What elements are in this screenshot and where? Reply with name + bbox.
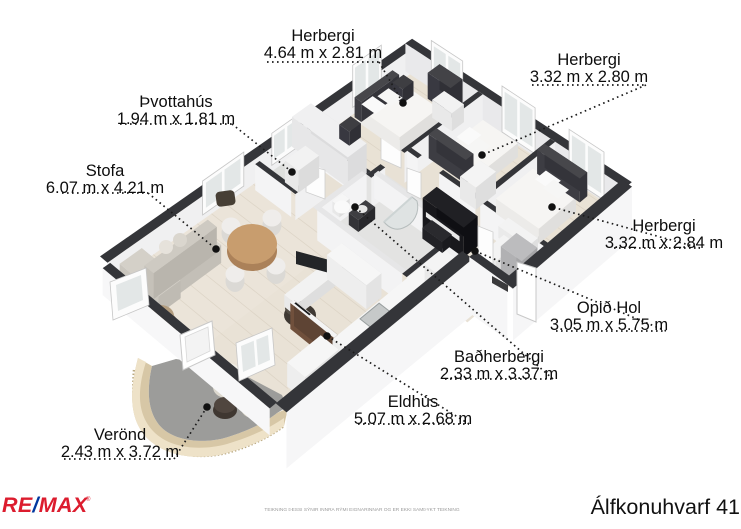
svg-text:Stofa: Stofa [86, 162, 125, 180]
svg-text:Baðherbergi: Baðherbergi [454, 348, 544, 366]
svg-text:3.32 m x 2.84 m: 3.32 m x 2.84 m [605, 234, 723, 252]
svg-text:Verönd: Verönd [94, 426, 146, 444]
svg-text:3.32 m x 2.80 m: 3.32 m x 2.80 m [530, 68, 648, 86]
svg-text:TEIKNING ÞESSI SÝNIR INNRA RÝM: TEIKNING ÞESSI SÝNIR INNRA RÝMI EIGNARIN… [264, 506, 459, 513]
svg-text:4.64 m x 2.81 m: 4.64 m x 2.81 m [264, 44, 382, 62]
svg-text:2.43 m x 3.72 m: 2.43 m x 3.72 m [61, 443, 179, 461]
svg-text:®: ® [86, 496, 91, 503]
svg-text:Herbergi: Herbergi [632, 217, 695, 235]
svg-text:RE/MAX: RE/MAX [2, 493, 89, 517]
svg-text:Þvottahús: Þvottahús [139, 93, 212, 111]
svg-text:1.94 m x 1.81 m: 1.94 m x 1.81 m [117, 110, 235, 128]
svg-text:5.07 m x 2.68 m: 5.07 m x 2.68 m [354, 410, 472, 428]
svg-text:3.05 m x 5.75 m: 3.05 m x 5.75 m [550, 316, 668, 334]
svg-text:Eldhús: Eldhús [388, 393, 438, 411]
svg-text:Opið Hol: Opið Hol [577, 299, 641, 317]
svg-text:Herbergi: Herbergi [557, 51, 620, 69]
svg-text:2.33 m x 3.37 m: 2.33 m x 3.37 m [440, 365, 558, 383]
svg-text:6.07 m x 4.21 m: 6.07 m x 4.21 m [46, 179, 164, 197]
svg-text:Álfkonuhvarf 41: Álfkonuhvarf 41 [591, 494, 740, 519]
svg-text:Herbergi: Herbergi [291, 27, 354, 45]
